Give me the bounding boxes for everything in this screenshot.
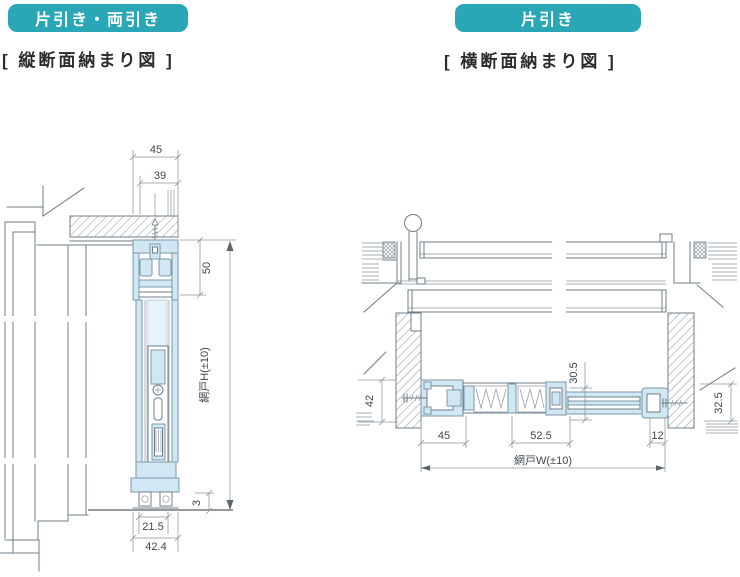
pleated-screen [463, 382, 566, 415]
dim-sill-outer-label: 42.4 [145, 541, 166, 553]
dim-outer-width-label: 45 [150, 144, 162, 156]
right-section-caption: [ 横断面納まり図 ] [444, 47, 617, 72]
left-wall-crosshatch [383, 242, 395, 258]
latch-unit [148, 346, 168, 462]
dim-inner-width-label: 39 [154, 170, 166, 182]
dim-head-height-label: 50 [201, 262, 213, 274]
screen-guide-rail [566, 388, 668, 418]
screen-top-rail [133, 240, 178, 300]
wall-break-line [7, 186, 84, 216]
left-section-badge: 片引き・両引き [8, 4, 188, 32]
right-section-badge: 片引き [455, 4, 641, 32]
horizontal-section-diagram [356, 215, 738, 434]
right-wall-crosshatch [694, 242, 706, 258]
left-section-caption: [ 縦断面納まり図 ] [2, 46, 175, 71]
drawing-canvas: 45 39 50 網戸H(±10) 3 21.5 42.4 [0, 0, 740, 577]
drawing-sheet: 45 39 50 網戸H(±10) 3 21.5 42.4 [0, 0, 740, 577]
dim-frame-width-label: 45 [438, 430, 450, 442]
right-post-hatch [668, 313, 694, 428]
screen-frame-profile [421, 380, 463, 416]
door-handle [405, 215, 422, 281]
window-frame-lines [5, 222, 86, 553]
dim-screen-width-label: 網戸W(±10) [514, 453, 572, 467]
dim-screen-height-label: 網戸H(±10) [197, 347, 211, 403]
dim-end-gap-label: 12 [651, 430, 663, 442]
dim-pleat-width-label: 52.5 [530, 430, 551, 442]
dim-sill-inner-label: 21.5 [142, 521, 163, 533]
dim-bottom-clearance-label: 3 [191, 500, 203, 506]
dim-rail-depth-label: 30.5 [568, 362, 580, 383]
lintel-hatch [70, 216, 178, 237]
screen-bottom-rail [131, 462, 179, 508]
dim-wall-offset-label: 32.5 [713, 392, 725, 413]
sliding-panels [397, 234, 672, 316]
dim-jamb-height-label: 42 [364, 395, 376, 407]
